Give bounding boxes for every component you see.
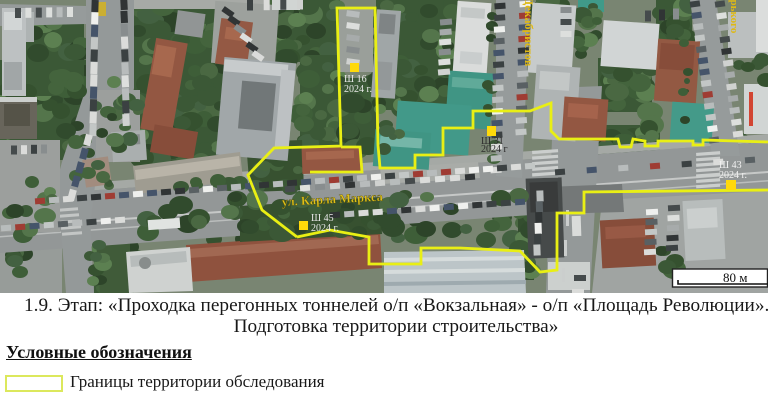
svg-text:2024 г.: 2024 г. xyxy=(311,223,339,234)
svg-text:2024 г.: 2024 г. xyxy=(344,84,372,95)
svg-text:2024 г.: 2024 г. xyxy=(719,170,747,181)
svg-text:2024 г: 2024 г xyxy=(481,144,508,155)
svg-text:Горького: Горького xyxy=(728,0,740,34)
svg-text:80 м: 80 м xyxy=(723,270,747,285)
svg-text:Декабристов: Декабристов xyxy=(522,0,536,67)
